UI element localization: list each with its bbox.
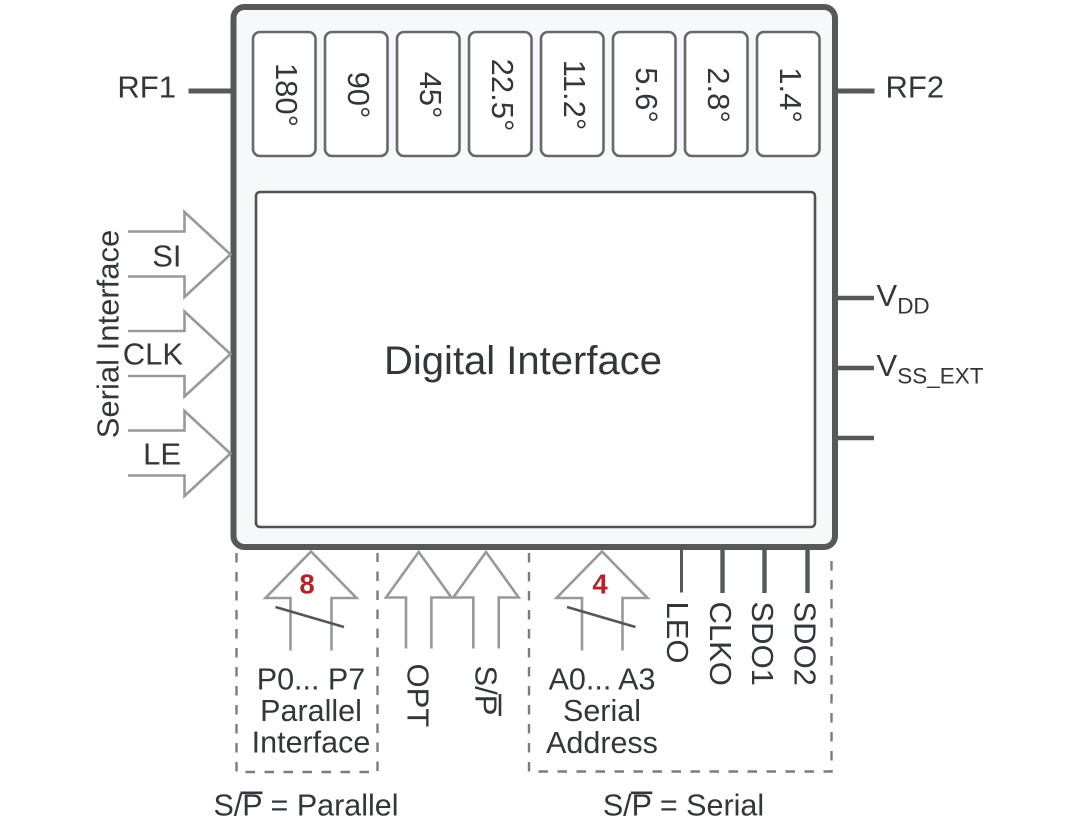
- svg-text:4: 4: [592, 569, 608, 600]
- svg-text:LEO: LEO: [660, 602, 695, 664]
- svg-text:5.6°: 5.6°: [629, 67, 664, 123]
- svg-text:1.4°: 1.4°: [773, 67, 808, 123]
- svg-text:SDO1: SDO1: [745, 602, 780, 686]
- svg-text:2.8°: 2.8°: [701, 67, 736, 123]
- svg-text:45°: 45°: [413, 72, 448, 119]
- svg-text:VSS_EXT: VSS_EXT: [877, 348, 984, 389]
- svg-text:90°: 90°: [341, 72, 376, 119]
- svg-text:LE: LE: [143, 437, 181, 472]
- svg-text:180°: 180°: [269, 63, 304, 127]
- svg-text:P0... P7: P0... P7: [257, 663, 366, 697]
- svg-text:S/P: S/P: [468, 666, 503, 716]
- svg-text:A0... A3: A0... A3: [549, 663, 656, 697]
- svg-text:Interface: Interface: [252, 726, 371, 760]
- svg-text:Parallel: Parallel: [260, 694, 362, 728]
- svg-text:VDD: VDD: [877, 278, 930, 319]
- svg-text:Address: Address: [546, 726, 658, 760]
- svg-text:Digital Interface: Digital Interface: [384, 339, 662, 383]
- svg-text:OPT: OPT: [400, 664, 435, 728]
- svg-text:S/P = Serial: S/P = Serial: [603, 789, 764, 821]
- svg-text:CLKO: CLKO: [703, 602, 738, 686]
- svg-text:CLK: CLK: [123, 337, 184, 372]
- svg-text:RF2: RF2: [886, 70, 945, 105]
- svg-text:Serial Interface: Serial Interface: [91, 230, 126, 439]
- svg-text:SDO2: SDO2: [788, 602, 823, 686]
- svg-text:RF1: RF1: [117, 70, 176, 105]
- svg-text:8: 8: [299, 569, 314, 600]
- svg-text:SI: SI: [152, 239, 181, 274]
- svg-text:11.2°: 11.2°: [557, 60, 592, 130]
- svg-text:22.5°: 22.5°: [485, 59, 520, 132]
- svg-text:Serial: Serial: [563, 694, 641, 728]
